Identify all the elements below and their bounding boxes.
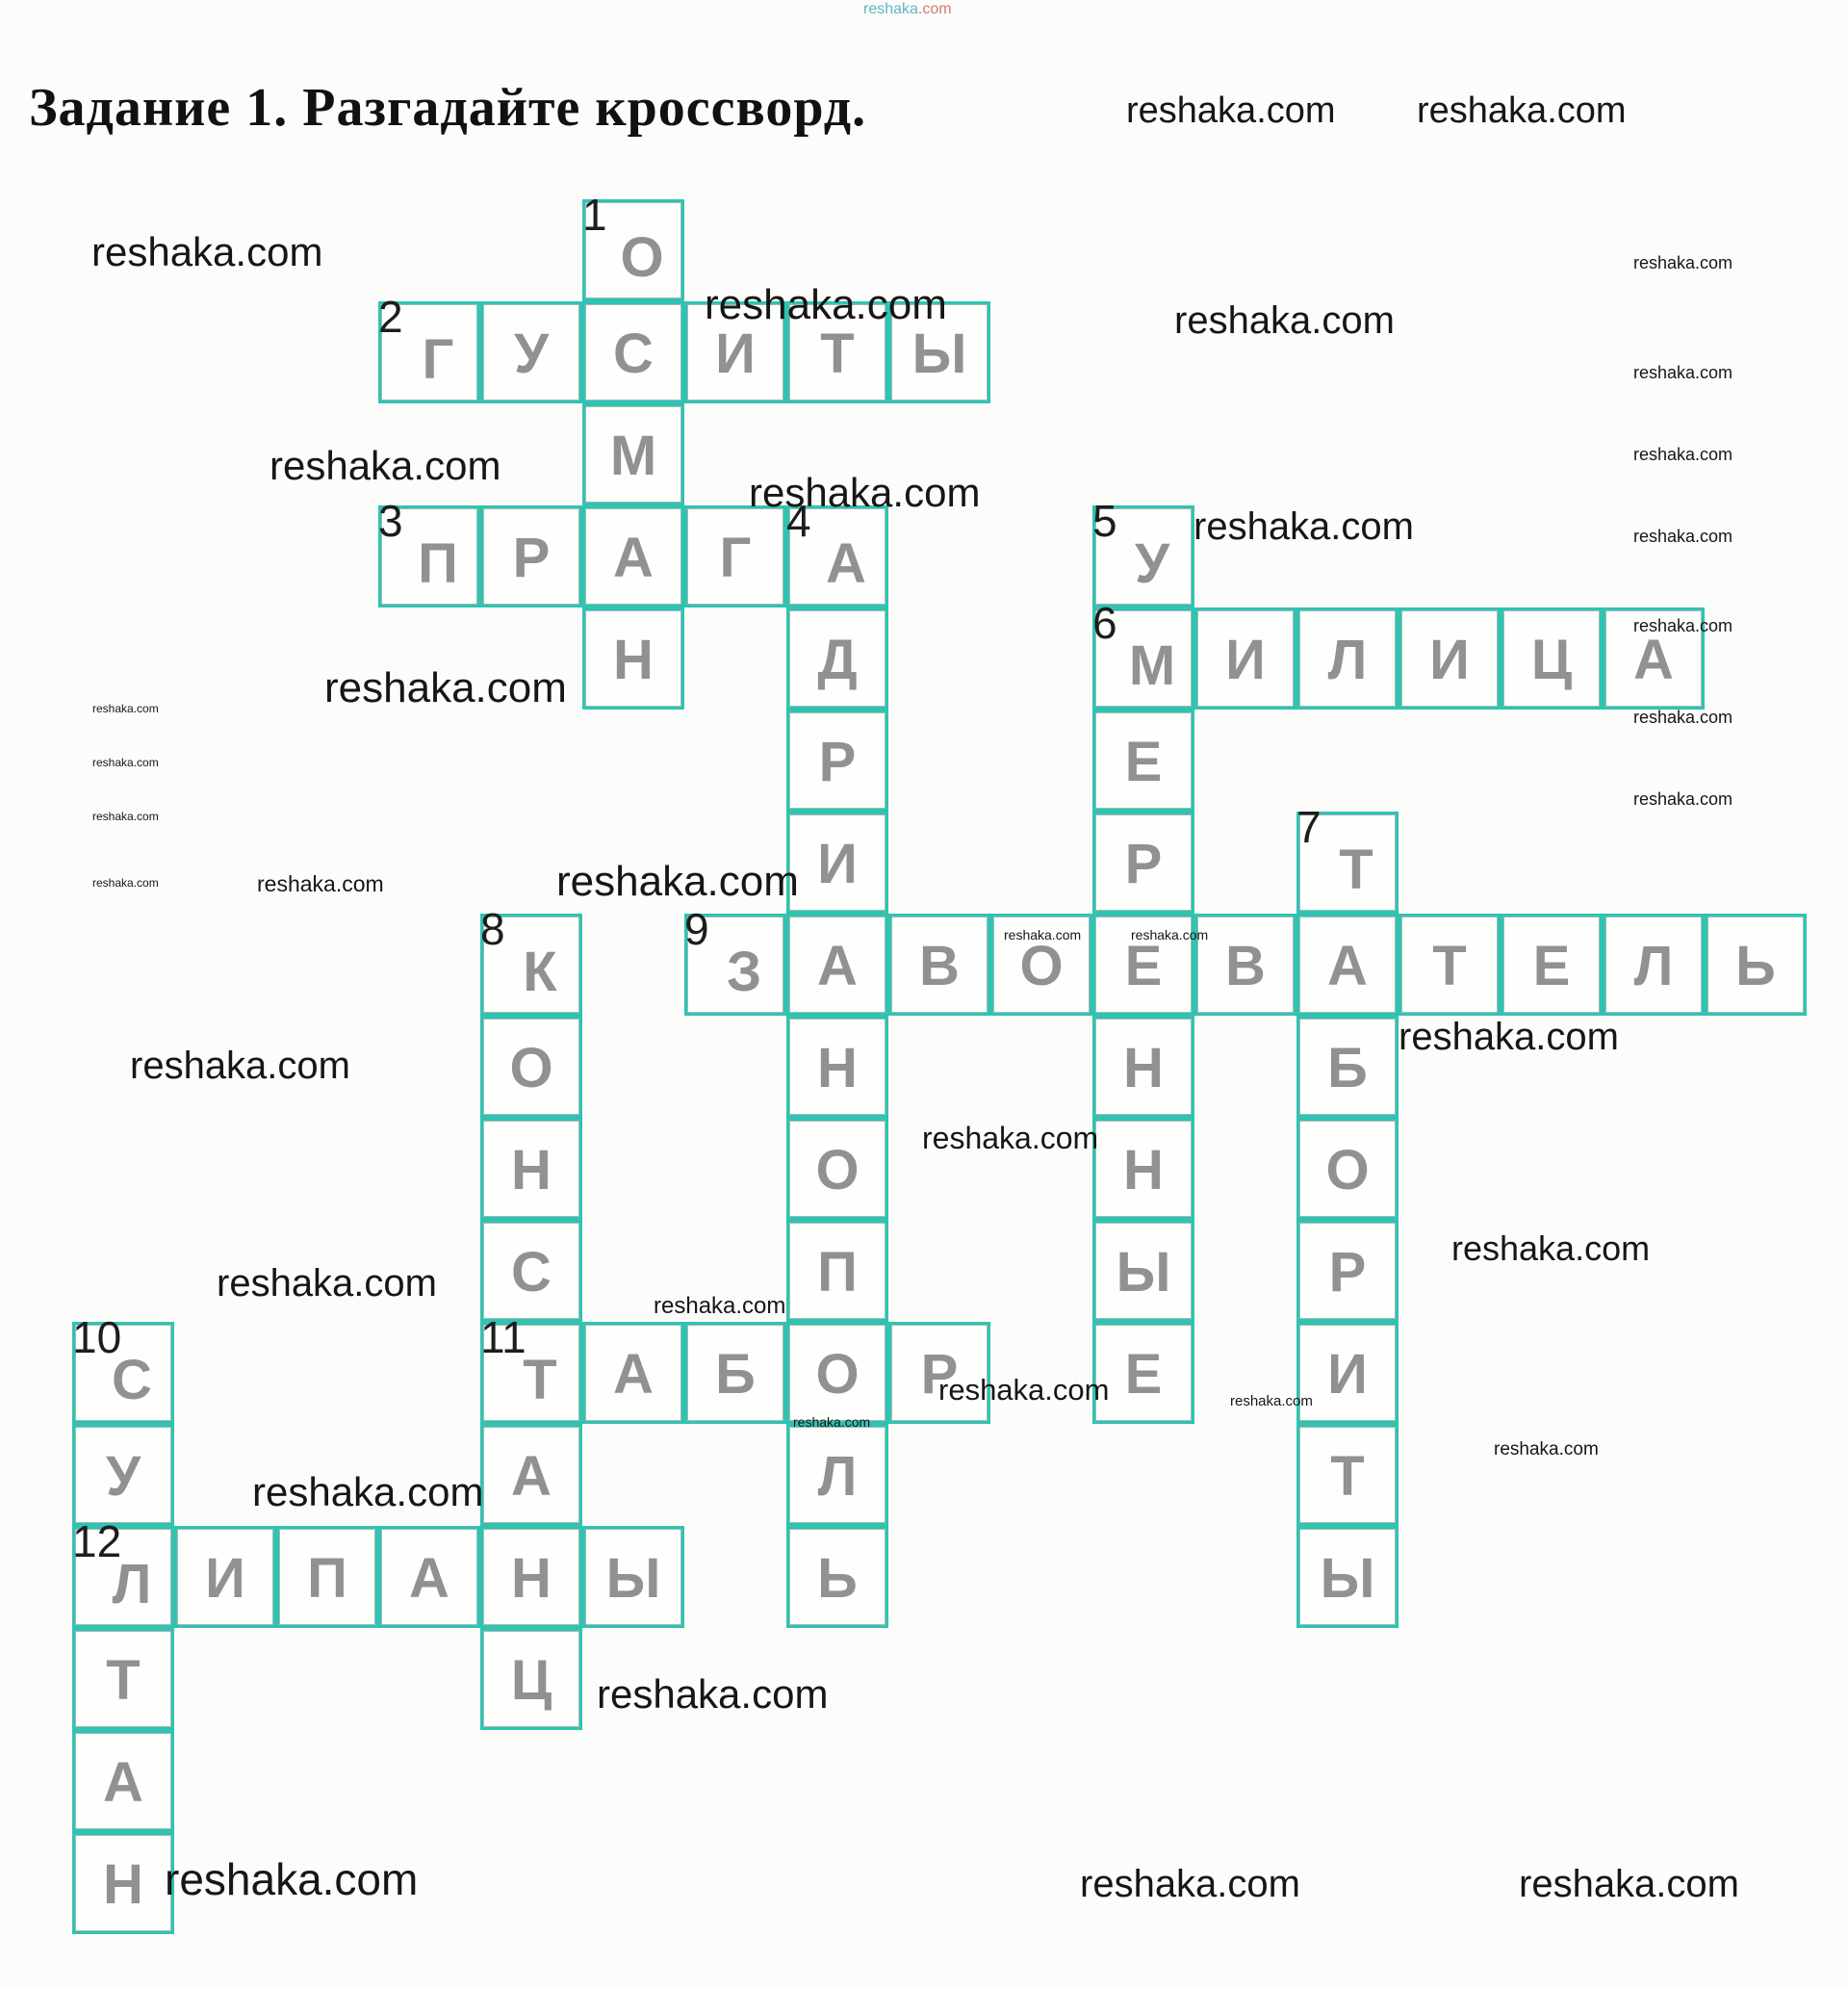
watermark: reshaka.com [1399,1017,1619,1057]
cell-letter: А [103,1755,143,1811]
cell-letter: А [1633,633,1674,688]
crossword-cell[interactable]: 4А [786,505,888,607]
crossword-cell[interactable]: Д [786,607,888,710]
crossword-cell[interactable]: 2Г [378,301,480,403]
cell-letter: Ы [1116,1245,1171,1301]
watermark: reshaka.com [1131,928,1208,943]
crossword-cell[interactable]: Р [480,505,582,607]
crossword-cell[interactable]: А [1296,914,1399,1016]
crossword-cell[interactable]: Л [1296,607,1399,710]
crossword-cell[interactable]: А [378,1526,480,1628]
watermark: reshaka.com [92,703,159,715]
cell-letter: П [817,1245,858,1301]
watermark: reshaka.com [556,860,799,904]
watermark: reshaka.com [1174,300,1395,341]
cell-letter: П [418,536,458,592]
watermark: reshaka.com [1126,92,1336,131]
crossword-cell[interactable]: Н [1092,1016,1194,1118]
crossword-cell[interactable]: Т [1296,1424,1399,1526]
watermark: reshaka.com [793,1415,870,1430]
cell-letter: Н [1123,1143,1164,1199]
crossword-cell[interactable]: А [582,1322,684,1424]
crossword-cell[interactable]: С [582,301,684,403]
watermark: reshaka.com [1494,1440,1599,1459]
cell-letter: О [1325,1143,1369,1199]
watermark: reshaka.com [1004,928,1081,943]
cell-letter: В [1225,939,1266,994]
cell-letter: З [727,944,761,1000]
watermark: reshaka.com [92,811,159,823]
cell-letter: С [613,326,654,382]
cell-letter: Т [1432,939,1466,994]
watermark: reshaka.com [165,1856,418,1902]
cell-letter: И [1225,633,1266,688]
watermark: reshaka.com [1633,709,1732,727]
crossword-cell[interactable]: Е [1092,710,1194,812]
crossword-cell[interactable]: 1О [582,199,684,301]
crossword-cell[interactable]: 8К [480,914,582,1016]
crossword-cell[interactable]: Ц [480,1628,582,1730]
crossword-cell[interactable]: Ц [1501,607,1603,710]
cell-number: 6 [1092,601,1117,645]
cell-letter: Б [715,1347,756,1403]
cell-letter: Г [423,332,454,388]
crossword-cell[interactable]: Г [684,505,786,607]
crossword-cell[interactable]: И [1194,607,1296,710]
crossword-cell[interactable]: 11Т [480,1322,582,1424]
cell-letter: Е [1533,939,1571,994]
crossword-cell[interactable]: Н [786,1016,888,1118]
cell-letter: И [205,1551,245,1607]
cell-letter: О [620,230,663,286]
cell-number: 5 [1092,499,1117,543]
crossword-cell[interactable]: А [72,1730,174,1832]
cell-letter: И [715,326,756,382]
cell-number: 11 [480,1315,526,1359]
cell-letter: Ы [606,1551,661,1607]
cell-letter: М [610,428,656,484]
cell-letter: Н [1123,1041,1164,1097]
crossword-cell[interactable]: Р [1296,1220,1399,1322]
cell-letter: А [817,939,858,994]
cell-letter: Л [1634,939,1674,994]
crossword-cell[interactable]: Ы [582,1526,684,1628]
cell-letter: А [613,1347,654,1403]
cell-letter: С [511,1245,552,1301]
crossword-cell[interactable]: 7Т [1296,812,1399,914]
cell-letter: Ы [912,326,967,382]
cell-number: 7 [1296,805,1322,849]
crossword-cell[interactable]: О [480,1016,582,1118]
cell-letter: Н [103,1857,143,1913]
cell-letter: О [509,1041,552,1097]
cell-letter: С [112,1353,152,1408]
watermark: reshaka.com [1519,1864,1739,1904]
crossword-cell[interactable]: 10С [72,1322,174,1424]
cell-letter: А [826,536,866,592]
crossword-cell[interactable]: Ь [1705,914,1807,1016]
cell-letter: Т [1330,1449,1364,1505]
watermark: reshaka.com [1451,1230,1650,1267]
crossword-cell[interactable]: А [582,505,684,607]
watermark: reshaka.com [130,1046,350,1086]
crossword-cell[interactable]: Н [480,1118,582,1220]
watermark: reshaka.com [269,445,500,487]
cell-letter: Г [720,530,752,586]
cell-letter: Н [817,1041,858,1097]
cell-letter: И [1327,1347,1368,1403]
crossword-cell[interactable]: С [480,1220,582,1322]
crossword-cell[interactable]: Ы [1296,1526,1399,1628]
cell-number: 3 [378,499,403,543]
cell-letter: А [511,1449,552,1505]
watermark: reshaka.com [324,666,567,710]
watermark: reshaka.com [1633,617,1732,635]
watermark: reshaka.com [92,757,159,769]
cell-letter: Е [1125,735,1163,790]
crossword-cell[interactable]: И [1399,607,1501,710]
crossword-cell[interactable]: У [72,1424,174,1526]
crossword-cell[interactable]: Н [582,607,684,710]
watermark: reshaka.com [91,231,322,273]
crossword-cell[interactable]: 3П [378,505,480,607]
crossword-cell[interactable]: Т [72,1628,174,1730]
cell-letter: Ц [511,1653,552,1709]
watermark: reshaka.com [1633,364,1732,382]
crossword-cell[interactable]: П [786,1220,888,1322]
cell-letter: Ь [817,1551,858,1607]
cell-letter: М [1129,638,1175,694]
watermark: reshaka.com [705,283,947,327]
crossword-cell[interactable]: Р [1092,812,1194,914]
cell-letter: Р [1125,837,1163,892]
crossword-cell[interactable]: О [1296,1118,1399,1220]
crossword-cell[interactable]: Н [1092,1118,1194,1220]
cell-letter: У [1135,536,1169,592]
cell-letter: Ы [1321,1551,1375,1607]
cell-letter: Е [1125,939,1163,994]
crossword-cell[interactable]: 6М [1092,607,1194,710]
watermark: reshaka.com [1417,92,1627,131]
cell-letter: Д [817,633,857,688]
watermark: reshaka.com [1080,1864,1300,1904]
crossword-cell[interactable]: А [480,1424,582,1526]
cell-letter: Л [818,1449,858,1505]
cell-letter: Р [513,530,551,586]
cell-number: 9 [684,907,709,951]
cell-letter: У [514,326,549,382]
crossword-cell[interactable]: Р [786,710,888,812]
crossword-cell[interactable]: Б [1296,1016,1399,1118]
crossword-cell[interactable]: Н [72,1832,174,1934]
watermark: reshaka.com [1193,506,1414,547]
crossword-cell[interactable]: Ы [1092,1220,1194,1322]
watermark: reshaka.com [1633,528,1732,546]
crossword-cell[interactable]: 5У [1092,505,1194,607]
crossword-cell[interactable]: Б [684,1322,786,1424]
crossword-cell[interactable]: Е [1501,914,1603,1016]
cell-letter: Н [511,1551,552,1607]
cell-letter: Т [106,1653,140,1709]
cell-letter: Ь [1735,939,1776,994]
watermark: reshaka.com [597,1673,828,1716]
watermark: reshaka.com [92,877,159,890]
crossword-cell[interactable]: И [174,1526,276,1628]
cell-letter: И [817,837,858,892]
crossword-cell[interactable]: О [786,1322,888,1424]
cell-letter: О [815,1347,859,1403]
crossword-cell[interactable]: В [1194,914,1296,1016]
page-title: Задание 1. Разгадайте кроссворд. [29,77,866,139]
cell-letter: Б [1327,1041,1368,1097]
watermark: reshaka.com [257,872,384,895]
crossword-cell[interactable]: Ь [786,1526,888,1628]
cell-letter: Т [820,326,854,382]
crossword-cell[interactable]: Н [480,1526,582,1628]
crossword-cell[interactable]: 9З [684,914,786,1016]
cell-letter: П [307,1551,347,1607]
crossword-cell[interactable]: У [480,301,582,403]
watermark: reshaka.com [654,1294,785,1318]
watermark: reshaka.com [1633,790,1732,809]
crossword-cell[interactable]: И [786,812,888,914]
watermark: reshaka.com [1633,254,1732,272]
cell-letter: О [815,1143,859,1199]
cell-number: 2 [378,295,403,339]
crossword-cell[interactable]: М [582,403,684,505]
cell-letter: Н [613,633,654,688]
crossword-cell[interactable]: А [786,914,888,1016]
crossword-cell[interactable]: О [786,1118,888,1220]
cell-number: 8 [480,907,505,951]
cell-number: 1 [582,193,607,237]
watermark: reshaka.com [938,1375,1109,1407]
crossword-cell[interactable]: 12Л [72,1526,174,1628]
crossword-cell[interactable]: П [276,1526,378,1628]
cell-letter: А [613,530,654,586]
watermark: reshaka.com [252,1471,483,1513]
crossword-cell[interactable]: В [888,914,990,1016]
cell-letter: Р [819,735,857,790]
cell-letter: А [409,1551,449,1607]
cell-letter: В [919,939,960,994]
cell-letter: И [1429,633,1470,688]
watermark: reshaka.com [1633,446,1732,464]
watermark: reshaka.com [863,2,952,18]
cell-letter: У [106,1449,141,1505]
crossword-cell[interactable]: Л [1603,914,1705,1016]
crossword-cell[interactable]: Т [1399,914,1501,1016]
cell-letter: Т [523,1353,556,1408]
cell-letter: Л [113,1557,152,1613]
cell-letter: Ц [1531,633,1572,688]
cell-letter: Н [511,1143,552,1199]
watermark: reshaka.com [922,1123,1098,1155]
watermark: reshaka.com [1230,1394,1313,1409]
cell-letter: О [1019,939,1063,994]
crossword-cell[interactable]: Л [786,1424,888,1526]
cell-letter: А [1327,939,1368,994]
watermark: reshaka.com [217,1263,437,1304]
cell-letter: Е [1125,1347,1163,1403]
cell-letter: К [523,944,556,1000]
cell-letter: Л [1328,633,1368,688]
watermark: reshaka.com [749,472,980,514]
cell-letter: Т [1339,842,1373,898]
cell-letter: Р [1329,1245,1367,1301]
